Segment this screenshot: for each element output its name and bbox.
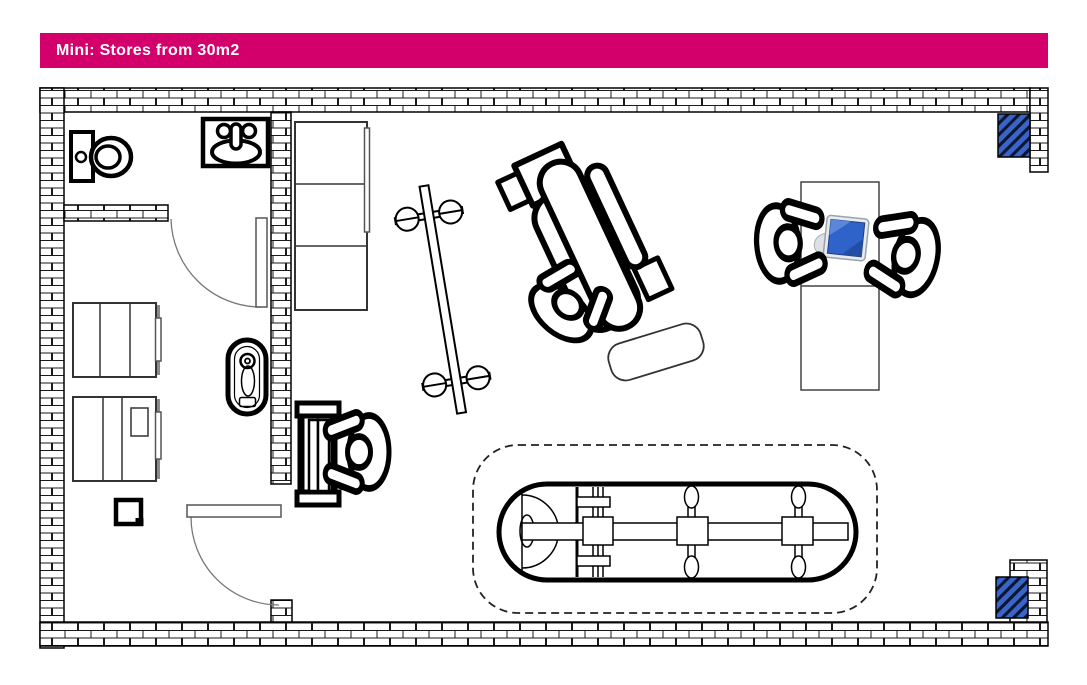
wall-shelf	[295, 122, 370, 310]
wall-left	[40, 88, 64, 648]
sink-icon	[203, 119, 268, 166]
water-heater-icon	[228, 340, 266, 414]
partition-wall-vertical	[271, 112, 291, 484]
structural-columns	[996, 114, 1030, 618]
cabinet-lower	[73, 397, 161, 481]
clothes-rail	[390, 180, 495, 418]
blue-column-bottom-right	[996, 577, 1028, 618]
entrance-door	[187, 505, 281, 605]
toilet-icon	[71, 132, 131, 181]
bathroom-door	[171, 218, 267, 307]
wall-top	[40, 88, 1030, 112]
sunbed	[499, 484, 856, 580]
wall-bottom	[40, 622, 1048, 646]
door-pier	[271, 600, 292, 622]
cabinet-upper	[73, 303, 161, 377]
wall-right-top	[1030, 88, 1048, 172]
floorplan-canvas	[0, 0, 1087, 685]
page: Mini: Stores from 30m2	[0, 0, 1087, 685]
blue-column-top-right	[998, 114, 1030, 157]
partition-wall-bathroom	[64, 205, 168, 221]
small-box	[116, 500, 144, 526]
